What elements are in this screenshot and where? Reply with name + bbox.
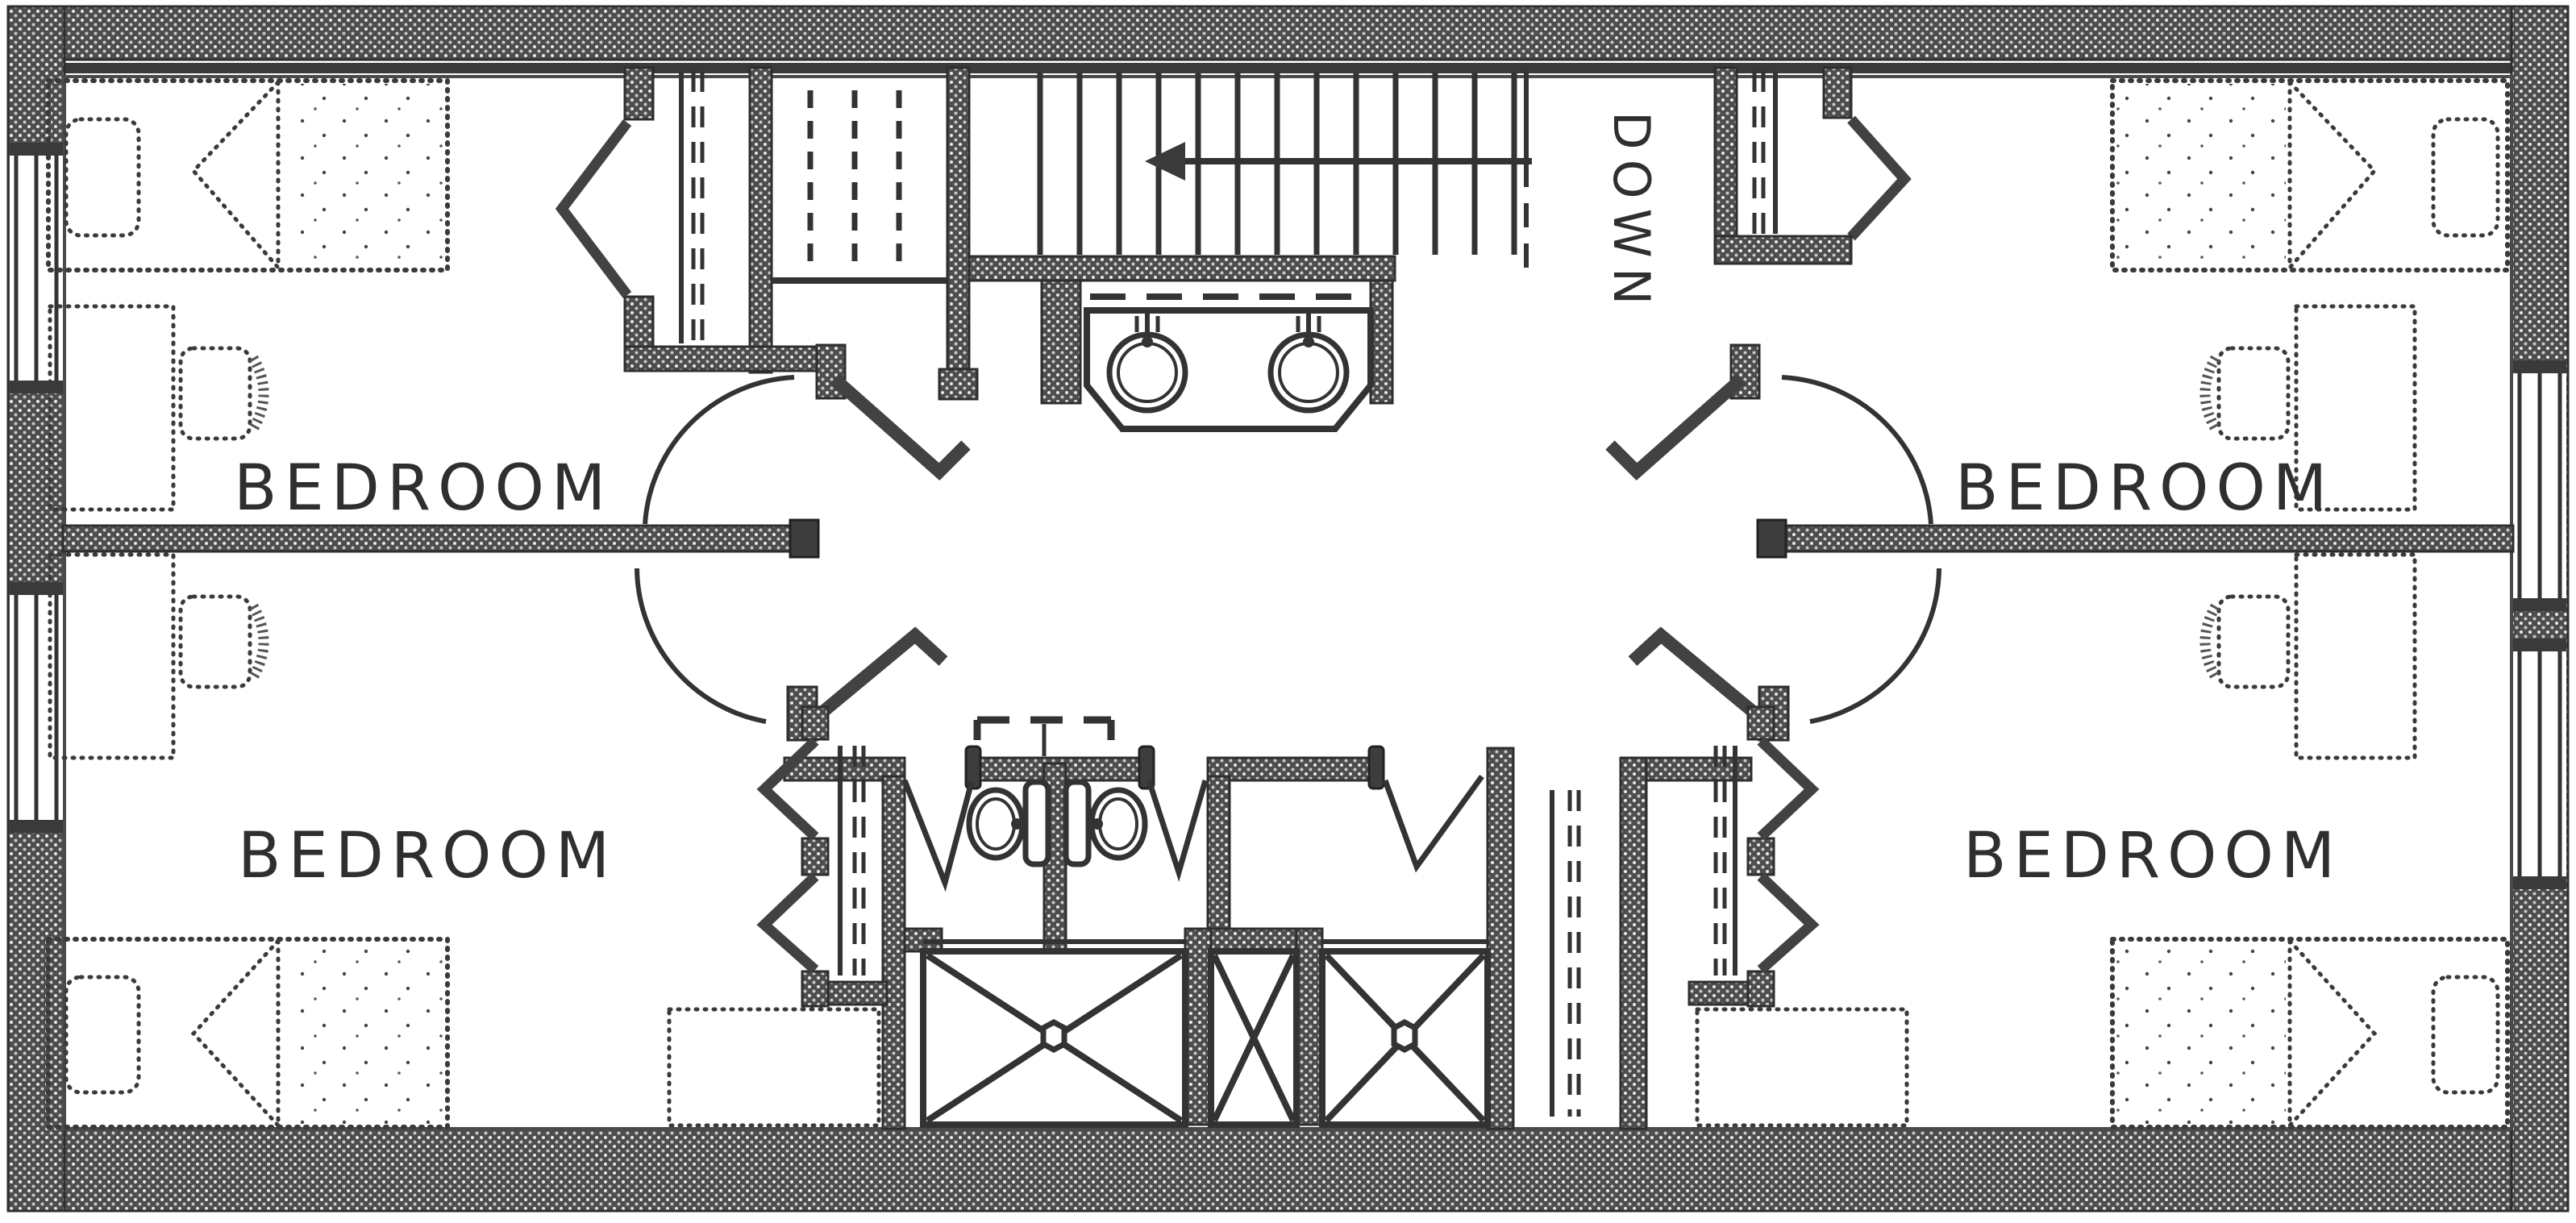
blanket-speckle <box>2116 942 2286 1124</box>
room-label-top-right: BEDROOM <box>1955 452 2334 525</box>
stairs-down-label: DOWN <box>1602 111 1661 314</box>
window-bottom-right <box>2513 639 2566 889</box>
floor-plan: DOWN <box>0 0 2576 1223</box>
toilet-right <box>1066 782 1145 864</box>
room-label-bottom-left: BEDROOM <box>238 820 617 892</box>
exterior-wall-bottom <box>8 1129 2568 1211</box>
stair-west-wall <box>947 68 969 372</box>
divider-wall-left <box>63 526 790 551</box>
stair-south-wall <box>969 256 1395 281</box>
bath-west-wall <box>883 776 905 1129</box>
shower-middle <box>1211 951 1296 1125</box>
exterior-wall-top <box>8 6 2568 60</box>
stair-wall-post <box>939 369 977 399</box>
shower-right <box>1322 951 1488 1125</box>
blanket-speckle <box>2116 84 2286 268</box>
window-top-left <box>10 143 63 393</box>
bath-east-wall <box>1488 748 1513 1129</box>
shower-left <box>923 951 1185 1125</box>
blanket-speckle <box>284 942 445 1124</box>
drain-icon <box>1043 1022 1064 1050</box>
faucet-icon <box>1303 336 1314 347</box>
room-label-top-left: BEDROOM <box>234 452 613 525</box>
room-label-bottom-right: BEDROOM <box>1963 820 2342 892</box>
divider-wall-right-cap <box>1758 520 1786 557</box>
window-top-right <box>2513 360 2566 611</box>
faucet-icon <box>1142 336 1153 347</box>
exterior-wall-top-inner-line <box>8 63 2568 73</box>
divider-wall-right <box>1786 526 2513 551</box>
divider-wall-left-cap <box>790 520 818 557</box>
drain-icon <box>1394 1022 1415 1050</box>
toilet-left <box>969 782 1048 864</box>
window-bottom-left <box>10 582 63 833</box>
blanket-speckle <box>284 84 445 268</box>
